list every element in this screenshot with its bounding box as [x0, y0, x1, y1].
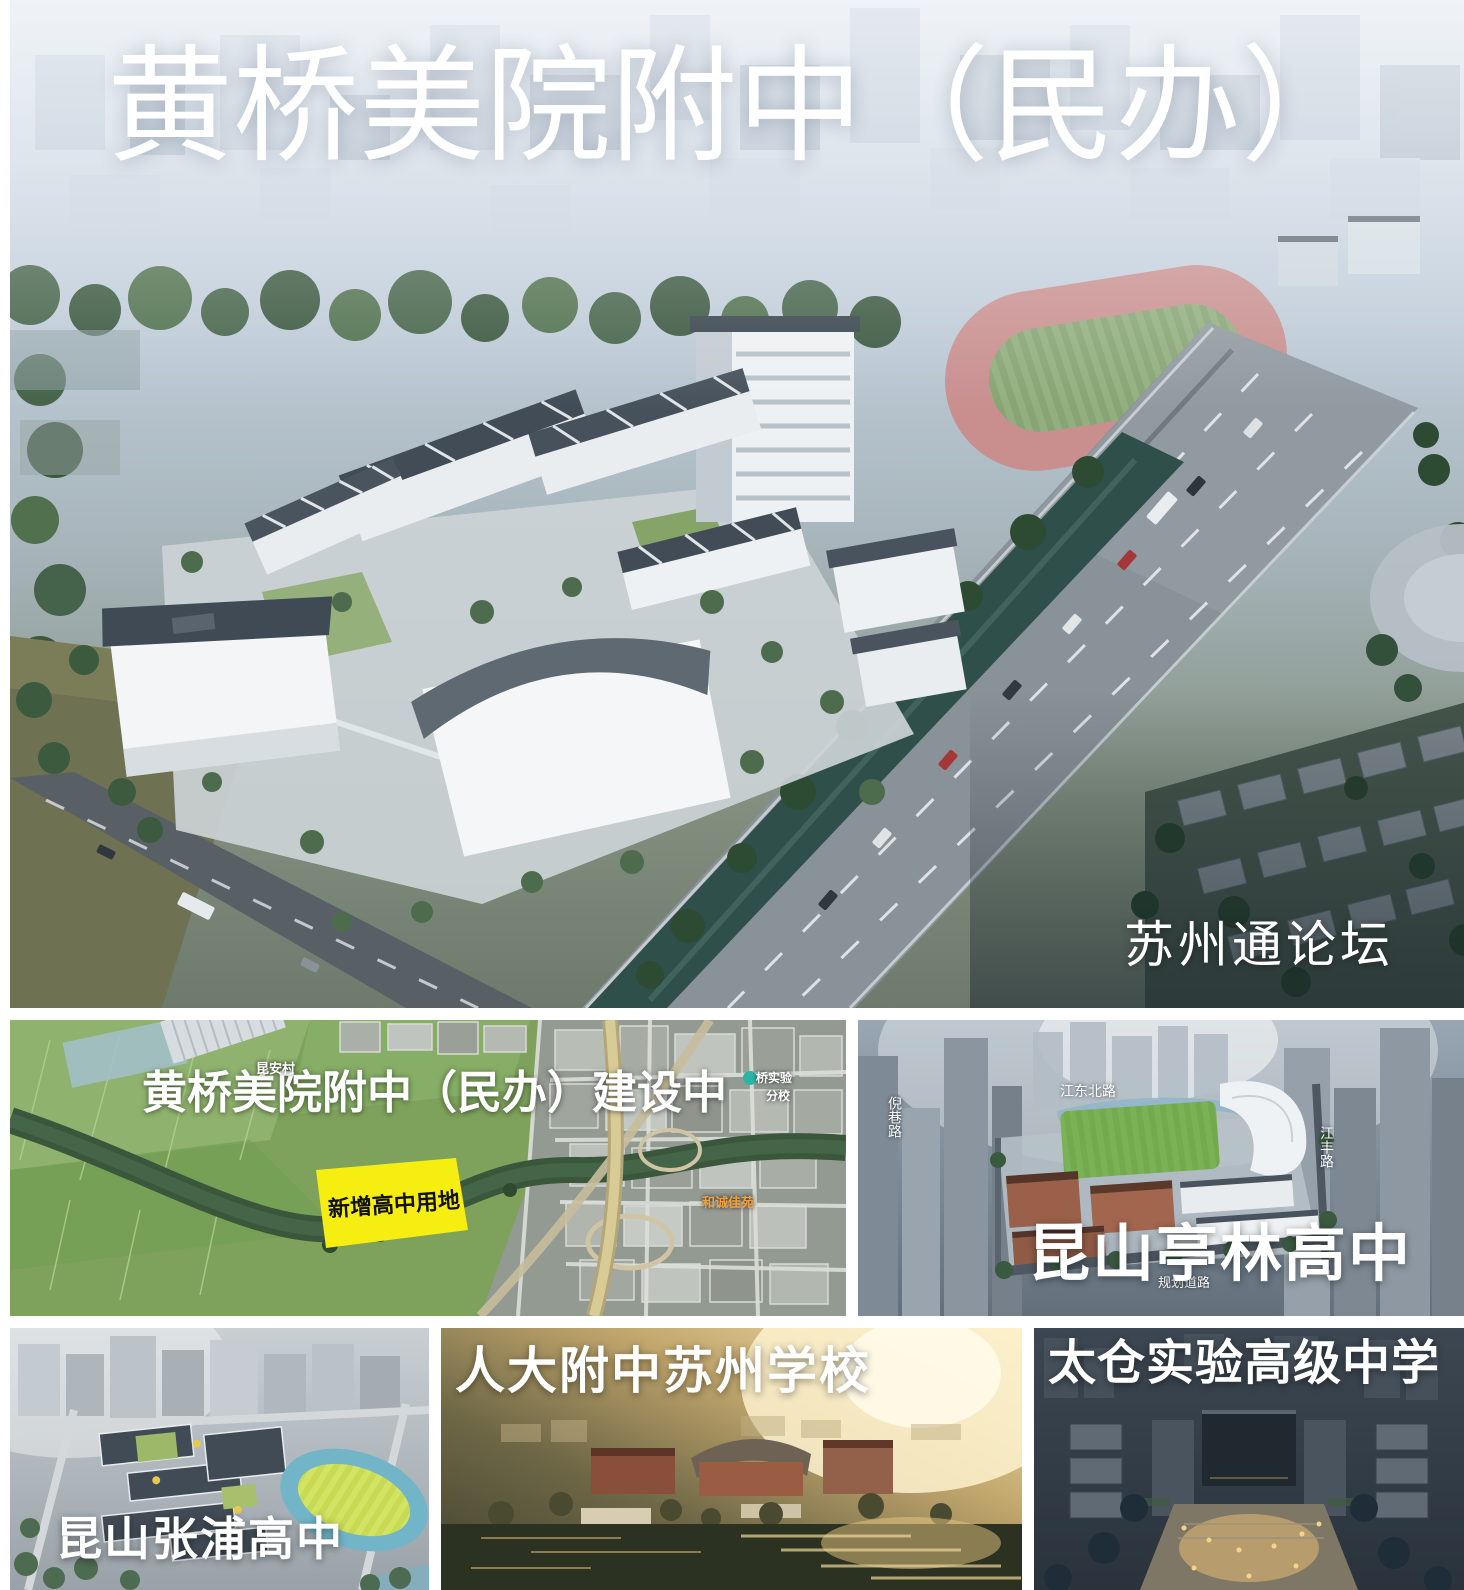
tinglin-title: 昆山亭林高中 — [1028, 1224, 1412, 1286]
school-poi-label-line1: 桥实验 — [756, 1072, 792, 1084]
huangqiao-rendering-panel: 黄桥美院附中（民办） 苏州通论坛 — [10, 0, 1464, 1008]
tinglin-sports-field — [1060, 1101, 1220, 1180]
satellite-map-art — [10, 1020, 846, 1316]
road-label-jiangdong-north: 江东北路 — [1060, 1084, 1116, 1098]
zhangpu-rendering-panel: 昆山张浦高中 — [10, 1328, 429, 1590]
renda-rendering-panel: 人大附中苏州学校 — [441, 1328, 1022, 1590]
road-label-nixiang: 倪巷路 — [888, 1096, 902, 1138]
forum-watermark: 苏州通论坛 — [1124, 920, 1394, 970]
taicang-rendering-panel: 太仓实验高级中学 — [1034, 1328, 1464, 1590]
school-poi-icon — [743, 1071, 757, 1085]
tinglin-rendering-panel: 江东北路 倪巷路 江丰路 规划道路 昆山亭林高中 — [858, 1020, 1464, 1316]
zhangpu-title: 昆山张浦高中 — [56, 1516, 344, 1562]
estate-label: 和诚佳苑 — [702, 1196, 754, 1209]
renda-title: 人大附中苏州学校 — [455, 1346, 871, 1396]
taicang-title: 太仓实验高级中学 — [1048, 1340, 1440, 1388]
school-poi-label-line2: 分校 — [766, 1090, 790, 1102]
school-collage: 黄桥美院附中（民办） 苏州通论坛 — [0, 0, 1464, 1590]
satellite-map-panel: 黄桥美院附中（民办）建设中 新增高中用地 昆安村 桥实验 分校 和诚佳苑 — [10, 1020, 846, 1316]
map-caption: 黄桥美院附中（民办）建设中 — [142, 1070, 727, 1115]
village-label: 昆安村 — [256, 1062, 295, 1075]
taicang-main-building — [1202, 1414, 1296, 1486]
road-label-jiangfeng: 江丰路 — [1320, 1126, 1334, 1168]
main-title: 黄桥美院附中（民办） — [107, 44, 1367, 170]
